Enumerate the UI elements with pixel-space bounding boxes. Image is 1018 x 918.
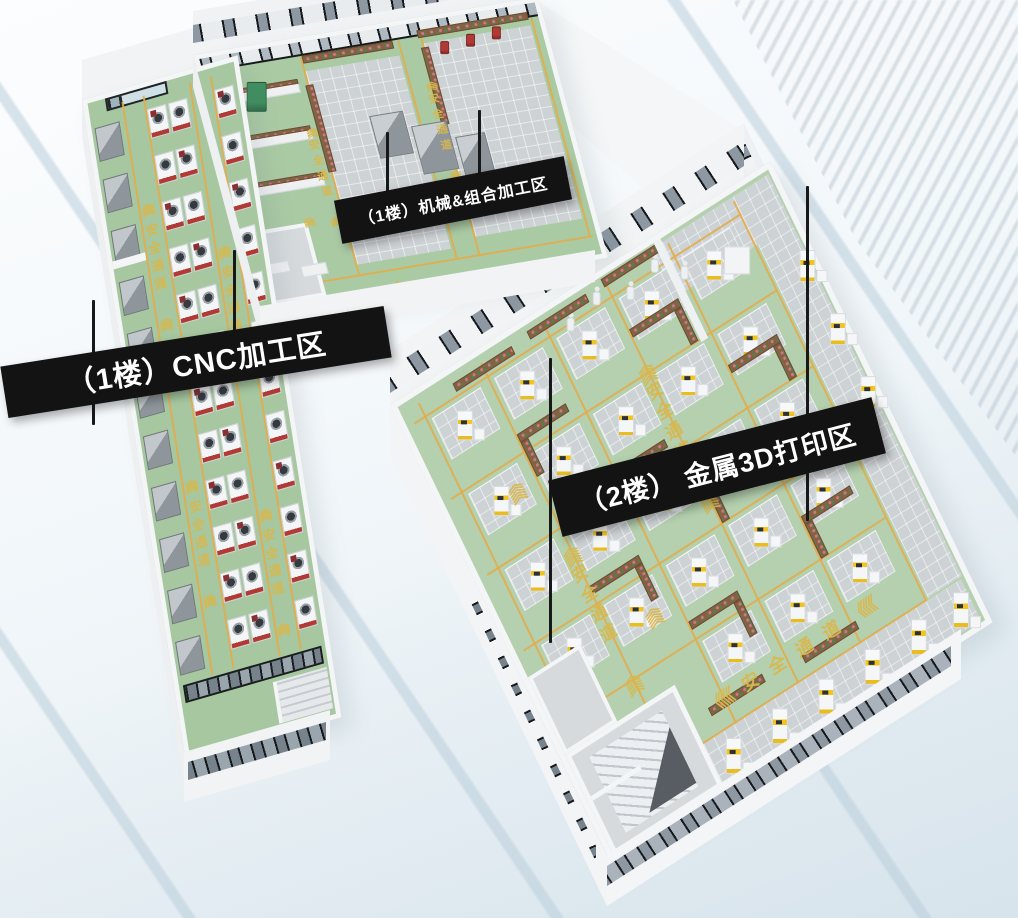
cnc-machine <box>265 410 289 445</box>
printer-screen <box>747 336 753 340</box>
floor-char: 道 <box>153 275 168 291</box>
floor-char: 道 <box>270 580 285 596</box>
floor-chevron-arrows: 《《《 <box>273 614 294 636</box>
printer-station <box>691 557 720 587</box>
floor-char: 安 <box>188 499 203 515</box>
cnc-machine <box>182 191 206 226</box>
printer-side-unit <box>869 571 880 583</box>
cnc-machine <box>161 197 185 232</box>
machine-panel <box>194 388 201 396</box>
floor-char: 通 <box>268 562 283 578</box>
floor-chevron-arrows: 《《《 <box>156 309 177 331</box>
printer-side-unit <box>847 333 858 345</box>
printer-screen <box>731 643 737 647</box>
printer-station <box>790 593 819 623</box>
cnc-machine-gray <box>151 481 181 522</box>
printer-screen <box>523 380 529 384</box>
printer-side-unit <box>599 348 610 360</box>
cnc-machine <box>287 549 311 584</box>
printer-3d-tower <box>830 313 846 345</box>
printer-screen <box>869 661 875 665</box>
floor-chevron-arrows: 《《《 <box>138 194 159 216</box>
floor-chevron-arrows: 《《《 <box>181 471 202 493</box>
printer-screen <box>834 324 840 328</box>
cnc-machine-gray <box>159 532 189 573</box>
printer-screen <box>560 456 566 460</box>
floor-char: 全 <box>191 516 206 532</box>
machine-panel <box>251 614 258 622</box>
cnc-machine-gray <box>94 121 124 162</box>
machine-tool <box>440 41 449 54</box>
banner-pole <box>549 358 552 643</box>
printer-screen <box>794 603 800 607</box>
cnc-machine <box>227 615 251 650</box>
floor-chevron-arrows: 《《《 <box>617 661 649 697</box>
printer-3d-tower <box>582 330 598 360</box>
printer-3d-tower <box>753 518 769 548</box>
cnc-machine <box>220 568 244 603</box>
printer-3d-tower <box>706 251 722 281</box>
printer-station <box>727 633 756 663</box>
cnc-machine <box>198 429 222 464</box>
cnc-machine <box>212 522 236 557</box>
printer-screen <box>534 572 540 576</box>
printer-3d-tower <box>818 679 834 715</box>
machine-panel <box>222 429 229 437</box>
machine-tool <box>491 26 500 39</box>
printer-3d-tower <box>519 370 535 400</box>
printer-station <box>830 313 859 345</box>
machine-panel <box>223 574 230 582</box>
printer-screen <box>856 563 862 567</box>
floor-chevron-arrows: 《《《 <box>299 211 318 226</box>
printer-screen <box>957 604 963 608</box>
cnc-machine <box>272 456 296 491</box>
printer-side-unit <box>877 396 888 408</box>
cnc-machine <box>205 475 229 510</box>
printer-screen <box>776 720 782 724</box>
printer-side-unit <box>474 428 485 440</box>
machine-panel <box>208 481 215 489</box>
floor-char: 全 <box>265 545 280 561</box>
printer-screen <box>695 567 701 571</box>
printer-screen <box>730 750 736 754</box>
cnc-machine-gray <box>143 430 173 471</box>
printer-screen <box>596 532 602 536</box>
printer-screen <box>783 412 789 416</box>
printer-3d-tower <box>680 366 696 396</box>
printer-side-unit <box>635 424 646 436</box>
printer-screen <box>864 387 870 391</box>
robot-arm-head <box>683 261 688 266</box>
printer-station <box>618 406 647 436</box>
floor-chevron-arrows: 《《《 <box>255 499 276 521</box>
robot-arm <box>651 259 659 273</box>
cnc-machine <box>241 562 265 597</box>
printer-3d-tower <box>726 738 742 774</box>
printer-station <box>799 250 828 282</box>
floor-char: 通 <box>194 534 209 550</box>
floor-char: 通 <box>150 257 165 273</box>
printer-side-unit <box>609 540 620 552</box>
printer-3d-tower <box>911 619 927 655</box>
printer-screen <box>586 340 592 344</box>
cnc-machine <box>221 131 245 166</box>
cnc-machine <box>190 237 214 272</box>
printer-side-unit <box>770 536 781 548</box>
robot-arm <box>681 266 689 280</box>
printer-side-unit <box>708 575 719 587</box>
machine-panel <box>276 462 283 470</box>
printer-3d-tower <box>865 649 881 685</box>
machine-tool <box>247 82 267 112</box>
machine-panel <box>290 555 297 563</box>
printer-side-unit <box>816 270 827 282</box>
printer-station <box>680 366 709 396</box>
printer-3d-tower <box>618 406 634 436</box>
printer-3d-tower <box>790 593 806 623</box>
cnc-machine <box>175 144 199 179</box>
machine-tool <box>466 34 475 47</box>
floor-char: 安 <box>739 669 762 695</box>
floor-char: 道 <box>320 186 334 198</box>
printer-side-unit <box>536 388 547 400</box>
printer-3d-tower <box>852 553 868 583</box>
floor-chevron-arrows: 《《《 <box>847 595 878 626</box>
printer-station <box>852 553 881 583</box>
printer-station <box>519 370 548 400</box>
printer-side-unit <box>744 651 755 663</box>
machine-panel <box>150 110 157 118</box>
machine-panel <box>193 243 200 251</box>
printer-screen <box>497 496 503 500</box>
machine-panel <box>179 150 186 158</box>
factory-scene: 安全通道《《《《《《安全通道《《《《《《《《《《《《 安全通道《《《《《《安全通… <box>0 0 1018 918</box>
robot-arm-head <box>629 281 634 286</box>
cnc-machine <box>226 469 250 504</box>
cnc-machine <box>176 290 200 325</box>
cnc-machine <box>248 608 272 643</box>
floor-char: 道 <box>197 552 212 568</box>
cnc-machine-gray <box>103 173 133 214</box>
floor-chevron-arrows: 《《《 <box>199 586 220 608</box>
robot-arm <box>593 291 601 305</box>
cnc-machine <box>147 104 171 139</box>
printer-screen <box>461 420 467 424</box>
machine-panel <box>237 522 244 530</box>
printer-screen <box>757 527 763 531</box>
floor-chevron-arrows: 《《《 <box>421 75 440 90</box>
printer-station <box>457 410 486 440</box>
printer-station <box>530 562 559 592</box>
storage-cabinet <box>724 246 750 274</box>
printer-screen <box>822 690 828 694</box>
printer-3d-tower <box>727 633 743 663</box>
printer-side-unit <box>807 611 818 623</box>
printer-screen <box>820 487 826 491</box>
cnc-machine <box>154 150 178 185</box>
floor-char: 安 <box>262 527 277 543</box>
cnc-machine-gray <box>175 635 205 676</box>
cnc-machine-gray <box>167 584 197 625</box>
machine-panel <box>165 203 172 211</box>
printer-screen <box>710 260 716 264</box>
printer-screen <box>684 376 690 380</box>
machine-panel <box>179 296 186 304</box>
robot-arm <box>567 318 575 332</box>
printer-screen <box>622 416 628 420</box>
printer-3d-tower <box>457 410 473 440</box>
printer-side-unit <box>697 384 708 396</box>
floor-char: 全 <box>766 652 789 678</box>
printer-station <box>582 330 611 360</box>
printer-side-unit <box>970 616 981 628</box>
planter-box <box>773 342 797 381</box>
printer-station <box>753 518 782 548</box>
cnc-machine <box>169 243 193 278</box>
floor-chevron-arrows: 《《《 <box>214 237 235 259</box>
floor-char: 安 <box>145 222 160 238</box>
printer-3d-tower <box>953 592 969 628</box>
printer-screen <box>915 631 921 635</box>
cnc-machine <box>219 423 243 458</box>
printer-3d-tower <box>556 446 572 476</box>
printer-3d-tower <box>772 708 788 744</box>
cnc-machine <box>214 84 238 119</box>
printer-screen <box>648 300 654 304</box>
floor-char: 全 <box>148 240 163 256</box>
cnc-machine <box>197 283 221 318</box>
cnc-machine <box>294 595 318 630</box>
robot-arm-head <box>595 286 600 291</box>
printer-side-unit <box>510 504 521 516</box>
cnc-machine-gray <box>119 275 149 316</box>
printer-3d-tower <box>691 557 707 587</box>
printer-3d-tower <box>530 562 546 592</box>
cnc-machine <box>233 516 257 551</box>
robot-arm <box>627 286 635 300</box>
cnc-machine <box>168 98 192 133</box>
machine-panel <box>217 90 224 98</box>
machine-panel <box>232 183 239 191</box>
printer-station <box>953 592 982 628</box>
floor-chevron-arrows: 《《《 <box>302 121 321 136</box>
cnc-machine <box>280 502 304 537</box>
